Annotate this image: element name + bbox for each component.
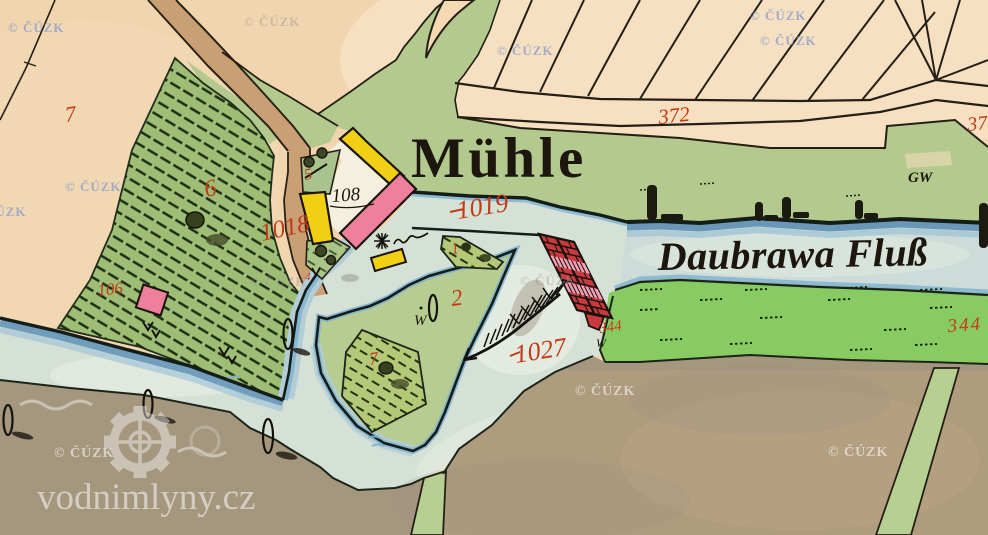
svg-text:© ČÚZK: © ČÚZK xyxy=(520,273,577,288)
svg-text:106: 106 xyxy=(96,278,124,300)
svg-text:Daubrawa Fluß: Daubrawa Fluß xyxy=(656,229,928,279)
svg-text:Mühle: Mühle xyxy=(411,127,587,190)
svg-text:W: W xyxy=(596,336,607,350)
svg-text:© ČÚZK: © ČÚZK xyxy=(760,33,817,48)
svg-text:© ČÚZK: © ČÚZK xyxy=(575,382,635,399)
svg-text:344: 344 xyxy=(946,314,983,337)
svg-text:372: 372 xyxy=(656,102,691,129)
svg-text:© ČÚZK: © ČÚZK xyxy=(497,43,554,58)
svg-text:W: W xyxy=(414,313,428,329)
svg-text:© ČÚZK: © ČÚZK xyxy=(0,204,27,219)
svg-text:© ČÚZK: © ČÚZK xyxy=(250,274,307,289)
svg-text:vodnimlyny.cz: vodnimlyny.cz xyxy=(37,477,256,518)
svg-text:© ČÚZK: © ČÚZK xyxy=(65,179,122,194)
svg-text:© ČÚZK: © ČÚZK xyxy=(750,8,807,23)
svg-text:© ČÚZK: © ČÚZK xyxy=(828,443,888,460)
svg-text:344: 344 xyxy=(597,318,623,337)
svg-text:108: 108 xyxy=(331,184,361,207)
svg-text:GW: GW xyxy=(908,170,934,186)
svg-text:© ČÚZK: © ČÚZK xyxy=(244,14,301,29)
svg-text:© ČÚZK: © ČÚZK xyxy=(8,20,65,35)
svg-text:37: 37 xyxy=(965,112,988,136)
